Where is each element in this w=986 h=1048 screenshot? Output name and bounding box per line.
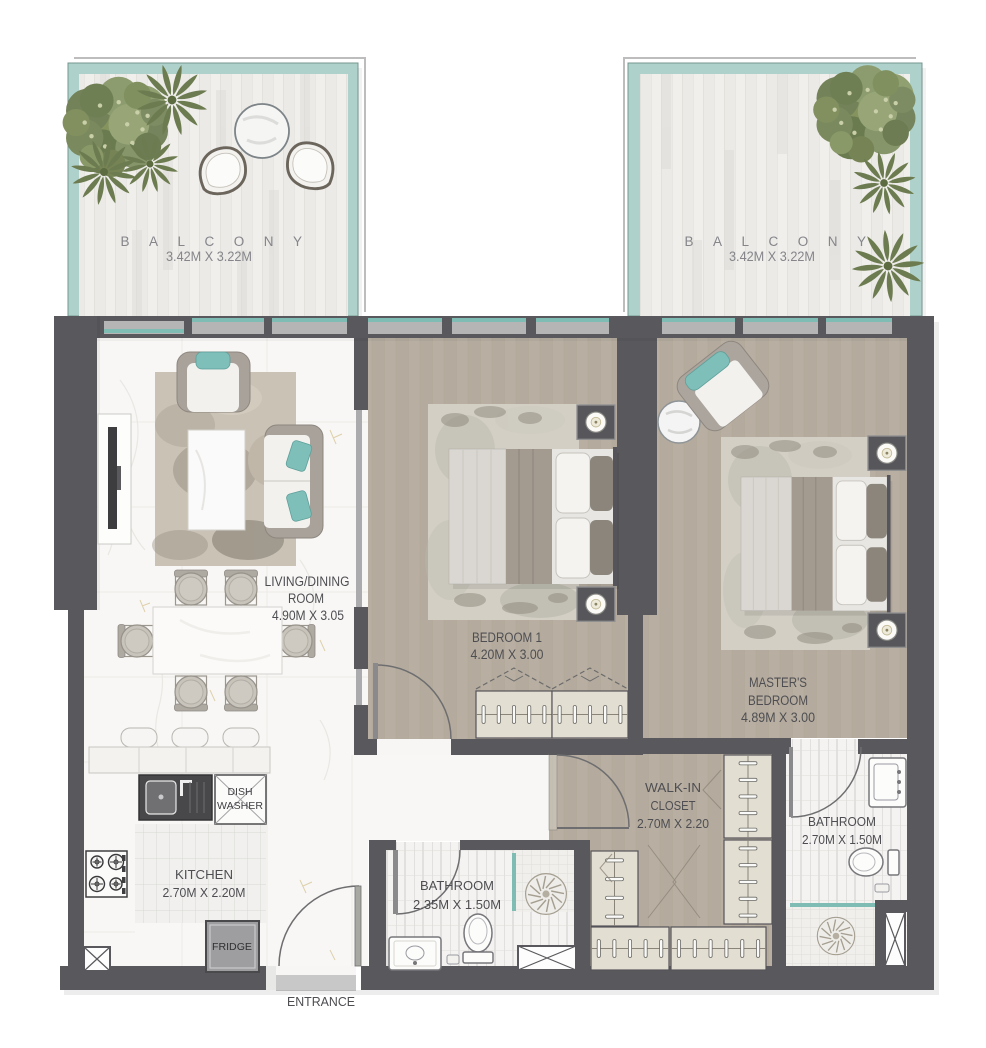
svg-text:DISH: DISH [227,786,252,798]
svg-text:BEDROOM 1: BEDROOM 1 [472,630,542,645]
svg-text:CLOSET: CLOSET [651,798,696,813]
svg-text:BALCONY: BALCONY [120,234,321,249]
svg-text:3.42M X 3.22M: 3.42M X 3.22M [729,249,815,264]
svg-text:LIVING/DINING: LIVING/DINING [265,574,350,589]
svg-text:BALCONY: BALCONY [684,234,885,249]
svg-text:3.42M X 3.22M: 3.42M X 3.22M [166,249,252,264]
svg-text:WALK-IN: WALK-IN [645,780,701,795]
svg-text:2.35M X 1.50M: 2.35M X 1.50M [413,897,501,912]
svg-text:MASTER'S: MASTER'S [749,675,807,690]
svg-text:2.70M X 2.20M: 2.70M X 2.20M [163,885,246,900]
svg-text:BATHROOM: BATHROOM [420,878,494,893]
svg-text:2.70M X 1.50M: 2.70M X 1.50M [802,832,882,847]
svg-text:BEDROOM: BEDROOM [748,693,808,708]
svg-text:4.20M X 3.00: 4.20M X 3.00 [471,647,544,662]
svg-text:BATHROOM: BATHROOM [808,814,876,829]
svg-text:ENTRANCE: ENTRANCE [287,994,355,1009]
svg-text:WASHER: WASHER [217,800,263,812]
svg-text:ROOM: ROOM [288,591,324,606]
svg-text:4.89M X 3.00: 4.89M X 3.00 [741,710,815,725]
svg-text:2.70M X 2.20: 2.70M X 2.20 [637,816,709,831]
svg-text:FRIDGE: FRIDGE [212,941,252,953]
svg-text:4.90M X 3.05: 4.90M X 3.05 [272,608,344,623]
svg-text:KITCHEN: KITCHEN [175,867,233,882]
